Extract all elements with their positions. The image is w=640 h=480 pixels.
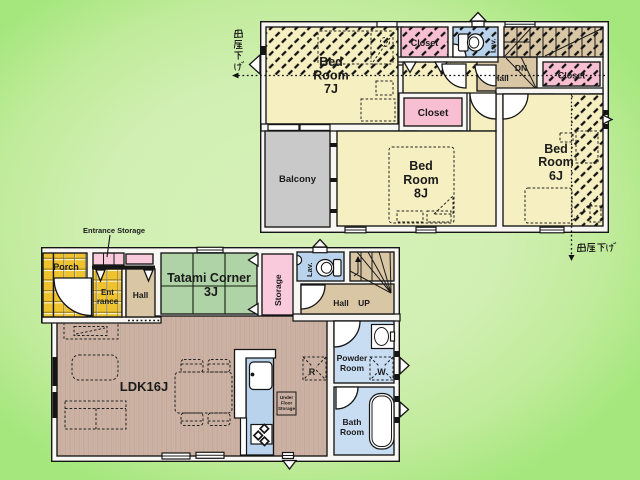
- svg-text:8J: 8J: [414, 187, 428, 201]
- svg-text:Room: Room: [340, 363, 365, 373]
- svg-text:Floor: Floor: [281, 401, 293, 406]
- svg-text:LDK16J: LDK16J: [120, 379, 168, 394]
- svg-text:Balcony: Balcony: [279, 174, 317, 185]
- svg-text:Closet: Closet: [558, 71, 586, 81]
- svg-text:Lav.: Lav.: [489, 39, 498, 53]
- svg-text:Hall: Hall: [133, 290, 149, 300]
- svg-text:Storage: Storage: [278, 406, 296, 411]
- svg-text:Powder: Powder: [337, 353, 368, 363]
- svg-text:Room: Room: [403, 173, 438, 187]
- svg-text:Lav.: Lav.: [305, 263, 314, 277]
- svg-text:Bath: Bath: [343, 417, 362, 427]
- svg-text:R: R: [309, 367, 316, 377]
- svg-text:Tatami Corner: Tatami Corner: [167, 271, 251, 285]
- svg-text:7J: 7J: [324, 82, 338, 96]
- svg-text:Room: Room: [538, 155, 573, 169]
- svg-text:Entrance Storage: Entrance Storage: [83, 226, 145, 235]
- svg-text:Storage: Storage: [273, 274, 283, 306]
- svg-text:6J: 6J: [549, 169, 563, 183]
- svg-text:Porch: Porch: [53, 262, 79, 272]
- svg-text:Ent: Ent: [101, 288, 114, 297]
- svg-text:3J: 3J: [204, 285, 218, 299]
- svg-text:Closet: Closet: [418, 108, 449, 119]
- svg-text:Under: Under: [280, 395, 293, 400]
- svg-text:Closet: Closet: [411, 38, 439, 48]
- svg-text:W: W: [377, 367, 386, 377]
- svg-text:UP: UP: [358, 298, 370, 308]
- svg-text:DN: DN: [515, 63, 527, 73]
- svg-text:Hall: Hall: [333, 298, 349, 308]
- svg-text:Bed: Bed: [409, 159, 433, 173]
- svg-text:Bed: Bed: [544, 142, 568, 156]
- svg-text:Bed: Bed: [319, 55, 343, 69]
- svg-text:Room: Room: [340, 427, 365, 437]
- svg-text:rance: rance: [97, 297, 119, 306]
